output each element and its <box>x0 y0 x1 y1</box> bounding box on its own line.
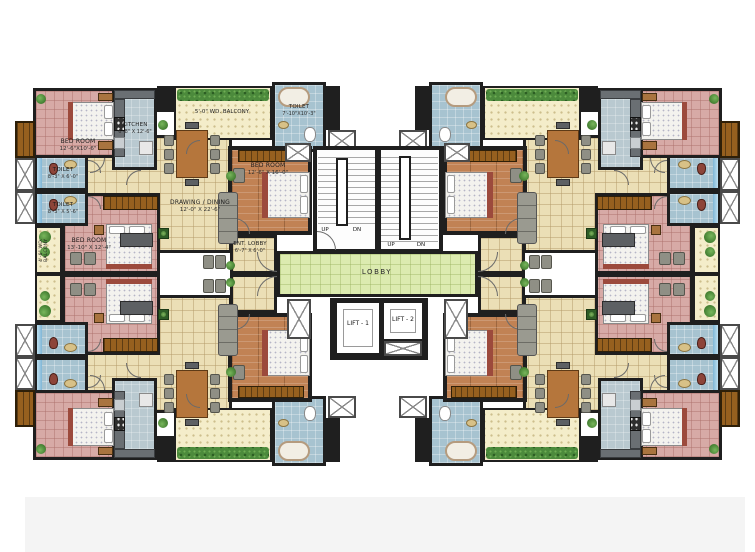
lobby-label: LOBBY <box>347 268 407 277</box>
planter-box <box>586 309 597 320</box>
wash-basin <box>64 379 77 388</box>
dresser <box>642 93 657 101</box>
fridge <box>139 393 153 407</box>
footer-shadow-band <box>25 497 745 552</box>
master-wardrobe <box>238 386 304 398</box>
room-name: ENT. LOBBY <box>222 241 278 248</box>
armchair <box>529 279 540 293</box>
armchair <box>203 255 214 269</box>
balcony-hedge <box>486 89 578 101</box>
wardrobe <box>103 196 158 210</box>
toilet-window <box>713 325 718 354</box>
room-name: TOILET <box>273 104 325 111</box>
bedroom-chair <box>673 252 685 265</box>
room-name: TOILET <box>40 167 86 174</box>
toilet-window <box>713 194 718 223</box>
pillow <box>104 412 113 426</box>
plant <box>40 291 50 301</box>
armchair <box>529 255 540 269</box>
toilet1-room <box>35 357 88 393</box>
dining-chair <box>210 135 220 146</box>
room-dims: 13'-10" X 12'-4" <box>56 245 122 252</box>
lift1-car <box>343 309 373 347</box>
fridge <box>139 141 153 155</box>
bedroom-chair <box>70 252 82 265</box>
toilet-window <box>37 360 42 390</box>
service-duct <box>579 86 598 112</box>
plant <box>158 418 168 428</box>
dining-chair <box>210 374 220 385</box>
toilet-wc <box>439 406 451 421</box>
dining-chair <box>210 402 220 413</box>
plant <box>226 367 236 377</box>
toilet1-label: TOILET 8'-3" X 6'-0" <box>40 167 86 180</box>
stair-up-label: UP <box>382 242 400 249</box>
bed-runner <box>603 279 649 284</box>
toilet-side-shaft <box>328 396 356 418</box>
pillow <box>447 196 455 214</box>
pillow <box>447 355 455 373</box>
facade-shaft-lower <box>15 191 35 224</box>
toilet2-label: TOILET 8'-3" X 5'-6" <box>40 202 86 215</box>
facade-shaft-lower <box>720 324 740 357</box>
dining-chair <box>210 163 220 174</box>
pillow <box>642 412 651 426</box>
bathtub <box>278 441 310 461</box>
dining-chair <box>581 402 591 413</box>
dresser <box>98 398 113 407</box>
stair-dn-label: DN <box>348 227 366 234</box>
dining-chair <box>535 163 545 174</box>
facade-shelf-niche <box>720 121 740 158</box>
plant <box>519 171 529 181</box>
dining-sideboard <box>185 122 199 129</box>
core-shaft <box>444 299 468 339</box>
dining-chair <box>164 135 174 146</box>
room-name: TOILET <box>40 202 86 209</box>
core-side-wall <box>415 86 429 130</box>
room-dims: 6'-8" X 12'-6" <box>110 129 160 135</box>
dining-sideboard <box>556 419 570 426</box>
dresser <box>98 93 113 101</box>
balcony-hedge <box>177 447 269 459</box>
dining-table <box>547 130 579 178</box>
room-dims: 12'-6" X 16'-0" <box>234 170 302 177</box>
plant <box>519 367 529 377</box>
wash-basin <box>466 419 477 427</box>
wardrobe <box>597 338 652 352</box>
stair-mid-wall <box>375 150 381 253</box>
bedroom1-label: BED ROOM 12'-6"X10'-6" <box>46 138 110 152</box>
plant <box>39 305 51 317</box>
plant <box>587 120 597 130</box>
plant <box>709 444 719 454</box>
bedroom-chair <box>84 283 96 296</box>
pillow <box>630 314 646 322</box>
facade-shaft-upper <box>720 158 740 191</box>
wash-basin <box>678 343 691 352</box>
nightstand <box>651 225 661 235</box>
stair-railing <box>336 158 348 226</box>
facade-shelf-niche <box>15 390 35 427</box>
room-name: KITCHEN <box>110 122 160 129</box>
toilet-wc <box>304 127 316 142</box>
armchair <box>541 255 552 269</box>
master-bed-runner <box>262 330 268 376</box>
plant <box>520 261 529 270</box>
toilet-wc <box>697 163 706 175</box>
room-dims: 7'-10"X10'-3" <box>273 111 325 117</box>
pillow <box>642 429 651 443</box>
room-name: DRAWING / DINING <box>160 199 240 207</box>
facade-shelf-niche <box>15 121 35 158</box>
planter-box <box>586 228 597 239</box>
dining-chair <box>581 135 591 146</box>
facade-shaft-upper <box>720 357 740 390</box>
stair-up-label: UP <box>316 227 334 234</box>
pillow <box>104 429 113 443</box>
dresser <box>98 447 113 455</box>
dining-chair <box>535 402 545 413</box>
wash-basin <box>678 196 691 205</box>
fridge <box>602 393 616 407</box>
stove-burners <box>630 417 641 431</box>
kitchen-sink <box>630 137 641 149</box>
bed-runner <box>68 102 73 140</box>
core-side-wall <box>415 418 429 462</box>
bathtub <box>445 87 477 107</box>
room-name: BED ROOM <box>56 237 122 245</box>
toilet-wc <box>304 406 316 421</box>
kitchen-counter <box>114 449 155 458</box>
core-shaft <box>287 299 311 339</box>
planter-box <box>158 228 169 239</box>
side-balcony-label: 4'-6" WD. BALCONY <box>39 227 51 273</box>
wash-basin <box>278 121 289 129</box>
drawing-dining-label: DRAWING / DINING 12'-0" X 22'-6" <box>160 199 240 213</box>
kitchen-counter <box>600 449 641 458</box>
kitchen-sink <box>114 399 125 411</box>
bedroom-chair <box>659 283 671 296</box>
dining-sideboard <box>556 179 570 186</box>
sofa <box>218 304 238 356</box>
lift2-label: LIFT - 2 <box>383 316 423 324</box>
pillow <box>642 122 651 136</box>
balcony-hedge <box>486 447 578 459</box>
dining-sideboard <box>185 419 199 426</box>
entrance-lobby-label: ENT. LOBBY 6'-7" X 6'-0" <box>222 241 278 254</box>
room-dims: 8'-3" X 6'-0" <box>40 174 86 180</box>
master-wardrobe <box>451 386 517 398</box>
dining-chair <box>164 163 174 174</box>
core-side-wall <box>326 418 340 462</box>
core-side-wall <box>326 86 340 130</box>
toilet2-room <box>35 322 88 357</box>
top-balcony-label: 5'-0" WD. BALCONY <box>176 109 268 116</box>
plant <box>226 261 235 270</box>
room-name: BED ROOM <box>234 162 302 170</box>
dining-chair <box>164 149 174 160</box>
bed-runner <box>682 102 687 140</box>
room-name: BED ROOM <box>46 138 110 146</box>
pillow <box>104 105 113 119</box>
wash-basin <box>678 379 691 388</box>
wardrobe <box>597 196 652 210</box>
pillow <box>300 355 308 373</box>
tv-cabinet <box>602 301 635 315</box>
nightstand <box>94 313 104 323</box>
toilet-window <box>37 325 42 354</box>
plant <box>36 94 46 104</box>
tv-cabinet <box>120 233 153 247</box>
facade-shelf-niche <box>720 390 740 427</box>
dining-chair <box>535 149 545 160</box>
floor-plan-canvas: BED ROOM 12'-6"X10'-6" KITCHEN 6'-8" X 1… <box>0 0 755 552</box>
dresser <box>642 398 657 407</box>
wing-quadrant-bottom-right <box>377 274 745 469</box>
wash-basin <box>278 419 289 427</box>
toilet-wc <box>697 337 706 349</box>
pillow <box>610 314 626 322</box>
kitchen-counter <box>114 90 155 99</box>
armchair <box>203 279 214 293</box>
balcony-hedge <box>177 89 269 101</box>
armchair <box>541 279 552 293</box>
bedroom2-label: BED ROOM 13'-10" X 12'-4" <box>56 237 122 251</box>
wash-basin <box>64 343 77 352</box>
dining-sideboard <box>185 179 199 186</box>
bed-runner <box>682 408 687 446</box>
facade-shaft-lower <box>720 191 740 224</box>
plant <box>587 418 597 428</box>
service-duct <box>579 436 598 462</box>
dining-chair <box>535 374 545 385</box>
room-dims: 8'-3" X 5'-6" <box>40 209 86 215</box>
kitchen-label: KITCHEN 6'-8" X 12'-6" <box>110 122 160 135</box>
plant <box>704 231 716 243</box>
bed-runner <box>603 264 649 269</box>
plant <box>520 278 529 287</box>
kitchen-counter <box>600 90 641 99</box>
toilet-window <box>713 158 718 188</box>
bedroom-chair <box>70 283 82 296</box>
kitchen-sink <box>114 137 125 149</box>
plant <box>36 444 46 454</box>
plant <box>705 247 715 257</box>
sofa <box>517 304 537 356</box>
planter-box <box>158 309 169 320</box>
wash-basin <box>466 121 477 129</box>
pillow <box>300 175 308 193</box>
dining-chair <box>164 388 174 399</box>
dining-sideboard <box>556 362 570 369</box>
facade-shaft-upper <box>15 357 35 390</box>
armchair <box>215 279 226 293</box>
bedroom-chair <box>659 252 671 265</box>
bed-runner <box>106 264 152 269</box>
toilet-wc <box>697 199 706 211</box>
dining-chair <box>535 135 545 146</box>
tv-cabinet <box>602 233 635 247</box>
stair-railing <box>399 156 411 240</box>
room-dims: 12'-0" X 22'-6" <box>160 207 240 214</box>
kitchen-sink <box>630 399 641 411</box>
toilet-wc <box>697 373 706 385</box>
lift1-label: LIFT - 1 <box>337 320 379 328</box>
master-bed-runner <box>487 330 493 376</box>
bathtub <box>445 441 477 461</box>
toilet-wc <box>439 127 451 142</box>
dresser <box>642 141 657 150</box>
lift-lobby-shaft <box>384 341 422 356</box>
facade-shaft-upper <box>15 158 35 191</box>
toilet-wc <box>49 337 58 349</box>
wing-quadrant-bottom-left <box>10 274 378 469</box>
dining-table <box>176 130 208 178</box>
core-shaft <box>285 143 311 162</box>
master-bed-runner <box>487 172 493 218</box>
plant <box>704 305 716 317</box>
toilet-wc <box>49 373 58 385</box>
stove-burners <box>114 417 125 431</box>
sofa <box>517 192 537 244</box>
dining-chair <box>535 388 545 399</box>
stove-burners <box>630 117 641 131</box>
room-dims: 6'-7" X 6'-0" <box>222 248 278 254</box>
room-dims: 12'-6"X10'-6" <box>46 146 110 153</box>
master-toilet-label: TOILET 7'-10"X10'-3" <box>273 104 325 117</box>
toilet-side-shaft <box>399 396 427 418</box>
bedroom-chair <box>84 252 96 265</box>
pillow <box>447 175 455 193</box>
nightstand <box>651 313 661 323</box>
wardrobe <box>103 338 158 352</box>
facade-shaft-lower <box>15 324 35 357</box>
plant <box>709 94 719 104</box>
tv-cabinet <box>120 301 153 315</box>
dining-chair <box>581 163 591 174</box>
dining-sideboard <box>185 362 199 369</box>
fridge <box>602 141 616 155</box>
dining-chair <box>581 149 591 160</box>
core-shaft <box>444 143 470 162</box>
stair-dn-label: DN <box>412 242 430 249</box>
nightstand <box>94 225 104 235</box>
wash-basin <box>678 160 691 169</box>
dining-chair <box>581 388 591 399</box>
plant <box>226 278 235 287</box>
dining-chair <box>210 388 220 399</box>
dining-chair <box>581 374 591 385</box>
pillow <box>300 196 308 214</box>
pillow <box>129 314 145 322</box>
bed-runner <box>106 279 152 284</box>
dresser <box>642 447 657 455</box>
armchair <box>215 255 226 269</box>
bed-runner <box>68 408 73 446</box>
dining-chair <box>164 402 174 413</box>
pillow <box>109 314 125 322</box>
pillow <box>642 105 651 119</box>
toilet-window <box>713 360 718 390</box>
master-bed-runner <box>262 172 268 218</box>
bedroom-chair <box>673 283 685 296</box>
dining-chair <box>210 149 220 160</box>
master-bedroom-label: BED ROOM 12'-6" X 16'-0" <box>234 162 302 176</box>
dining-sideboard <box>556 122 570 129</box>
dining-chair <box>164 374 174 385</box>
plant <box>705 291 715 301</box>
